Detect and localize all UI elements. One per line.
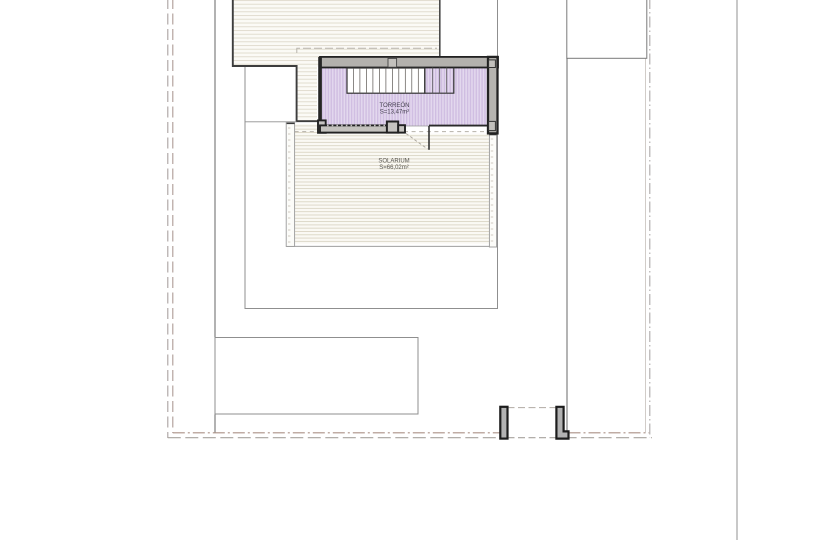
svg-text:TORREÓN: TORREÓN: [380, 102, 410, 109]
svg-text:SOLARIUM: SOLARIUM: [378, 159, 409, 165]
svg-text:S=13,47m²: S=13,47m²: [380, 109, 410, 115]
svg-text:S=66,02m²: S=66,02m²: [379, 165, 409, 171]
